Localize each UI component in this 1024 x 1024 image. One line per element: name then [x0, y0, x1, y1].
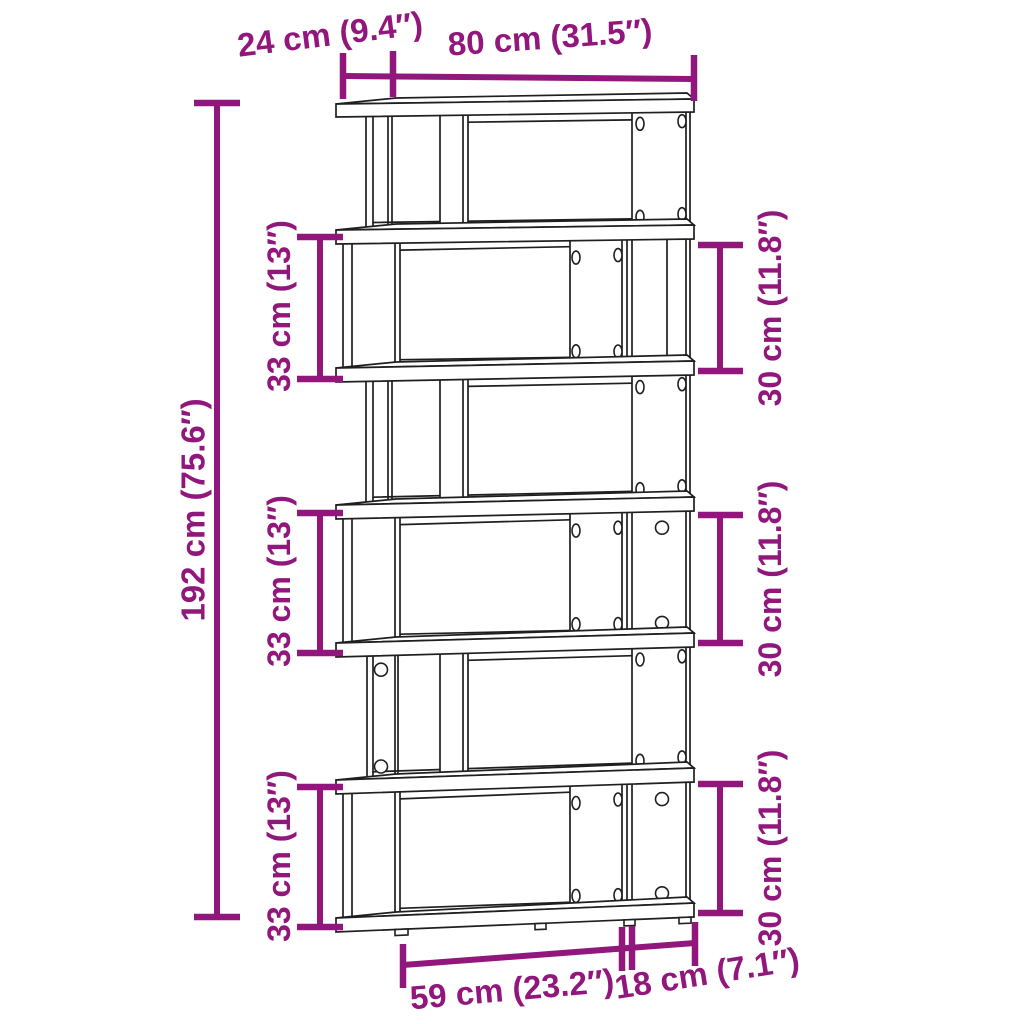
- opening-label-3: 30 cm (11.8″): [752, 750, 788, 947]
- width-label: 80 cm (31.5″): [447, 11, 654, 62]
- dim-top: 24 cm (9.4″) 80 cm (31.5″): [235, 4, 694, 101]
- dim-bottom: 59 cm (23.2″) 18 cm (7.1″): [403, 922, 802, 1016]
- dim-tier-2: 33 cm (13″): [261, 495, 343, 667]
- dim-opening-2: 30 cm (11.8″): [698, 481, 788, 678]
- dim-bottom-line: [403, 943, 695, 965]
- depth-label: 24 cm (9.4″): [235, 4, 425, 63]
- bookcase-drawing: [336, 93, 694, 936]
- height-label: 192 cm (75.6″): [175, 398, 212, 621]
- dim-tier-3: 33 cm (13″): [261, 770, 343, 942]
- dim-opening-1: 30 cm (11.8″): [698, 210, 788, 407]
- dim-opening-3: 30 cm (11.8″): [698, 750, 788, 947]
- tier-label-2: 33 cm (13″): [261, 495, 297, 667]
- dim-height: 192 cm (75.6″): [175, 103, 241, 917]
- diagram-canvas: 24 cm (9.4″) 80 cm (31.5″) 192 cm (75.6″…: [0, 0, 1024, 1024]
- tier-label-3: 33 cm (13″): [261, 770, 297, 942]
- tier-label-1: 33 cm (13″): [261, 220, 297, 392]
- dimension-diagram: 24 cm (9.4″) 80 cm (31.5″) 192 cm (75.6″…: [0, 0, 1024, 1024]
- opening-label-1: 30 cm (11.8″): [752, 210, 788, 407]
- base-wide-label: 59 cm (23.2″): [408, 962, 615, 1017]
- dim-tier-1: 33 cm (13″): [261, 220, 343, 392]
- opening-label-2: 30 cm (11.8″): [752, 481, 788, 678]
